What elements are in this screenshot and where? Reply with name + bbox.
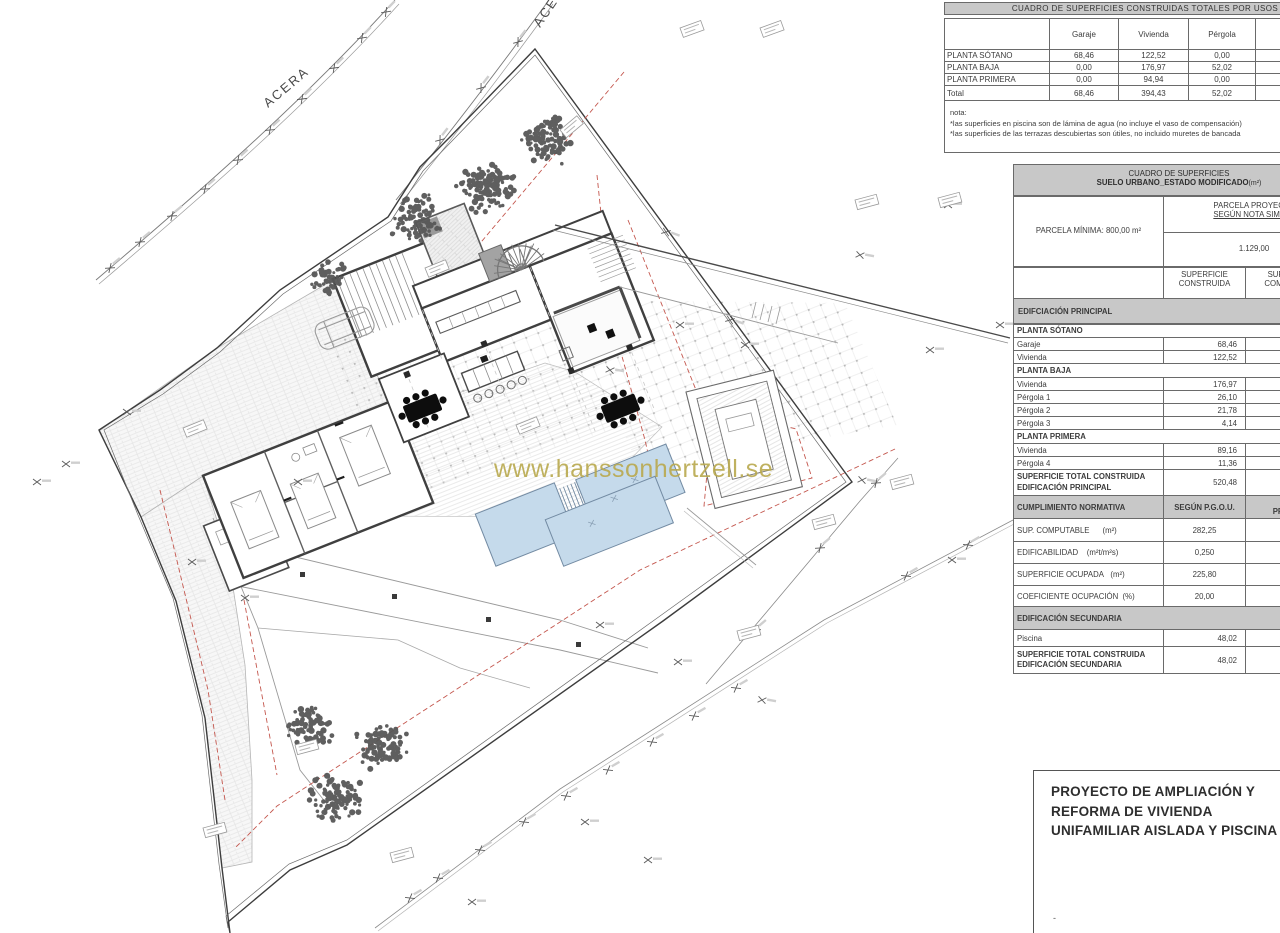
svg-text:ACERA: ACERA xyxy=(260,64,312,111)
svg-text:ACERA: ACERA xyxy=(530,0,573,30)
svg-text:www.hanssonhertzell.se: www.hanssonhertzell.se xyxy=(493,455,773,483)
